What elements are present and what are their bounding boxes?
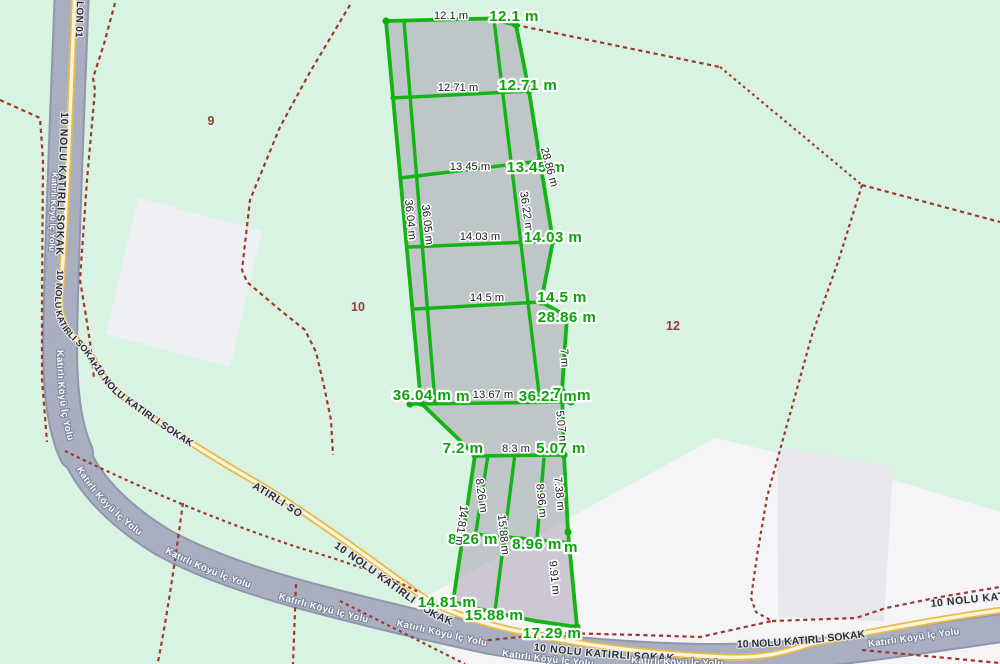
svg-text:LON 01: LON 01 [73,1,85,38]
svg-text:36.04 m: 36.04 m [393,387,452,404]
svg-text:7 m: 7 m [558,348,571,367]
svg-text:28.86 m: 28.86 m [538,309,597,326]
svg-text:36.22 m: 36.22 m [519,388,578,405]
svg-text:14.03 m: 14.03 m [524,229,583,246]
svg-text:12.71 m: 12.71 m [499,77,558,94]
svg-text:17.29 m: 17.29 m [523,625,582,642]
svg-text:9: 9 [208,114,215,128]
svg-text:15.88 m: 15.88 m [465,607,524,624]
svg-text:13.45 m: 13.45 m [450,161,490,173]
svg-text:14.03 m: 14.03 m [460,231,500,243]
svg-text:m: m [456,388,470,405]
svg-text:5.07 m: 5.07 m [536,440,586,457]
svg-text:8.96 m: 8.96 m [512,536,562,553]
svg-text:12: 12 [666,319,680,333]
svg-text:12.1 m: 12.1 m [434,10,468,22]
svg-text:14.5 m: 14.5 m [537,289,587,306]
svg-text:7.2 m: 7.2 m [443,440,484,457]
svg-text:7: 7 [553,385,562,402]
svg-text:8.3 m: 8.3 m [502,443,530,455]
svg-text:14.5 m: 14.5 m [470,292,504,304]
svg-text:13.67 m: 13.67 m [473,389,513,401]
svg-text:10: 10 [351,300,365,314]
svg-text:m: m [577,387,591,404]
svg-text:12.1 m: 12.1 m [489,8,539,25]
svg-text:m: m [564,539,578,556]
svg-text:12.71 m: 12.71 m [438,82,478,94]
